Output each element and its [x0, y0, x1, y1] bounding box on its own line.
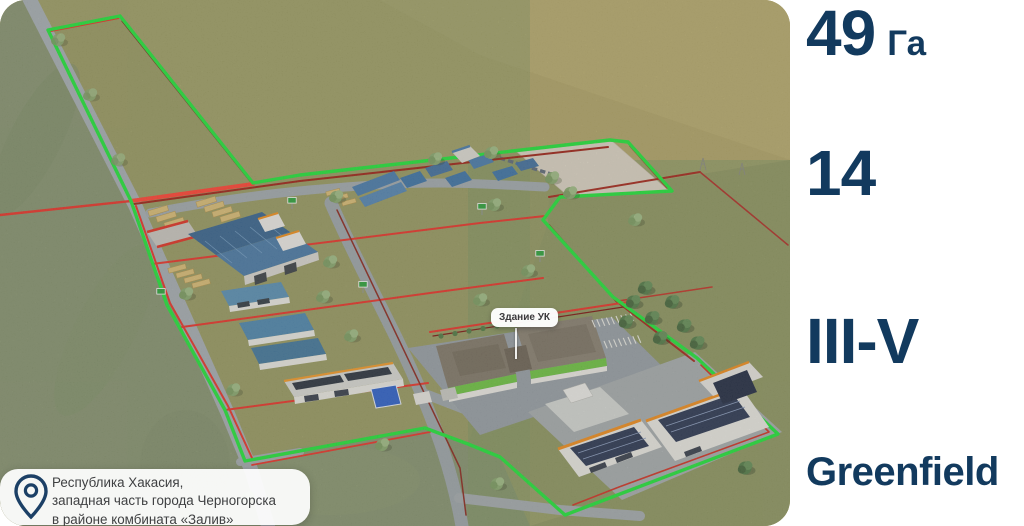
stat-area-value: 49 [806, 0, 875, 69]
uk-building-label: Здание УК [491, 308, 558, 327]
stat-site-type: Greenfield [806, 450, 999, 494]
location-text: Республика Хакасия, западная часть город… [52, 474, 276, 526]
uk-label-stem [515, 328, 517, 359]
stat-hazard-class-value: III-V [806, 305, 918, 377]
site-render: Здание УК Республика Хакасия, западная ч… [0, 0, 790, 526]
stats-column: 49Га 14 III-V Greenfield [806, 0, 1024, 526]
location-line-1: Республика Хакасия, [52, 474, 276, 492]
texture-grain-light [0, 0, 790, 526]
location-pin-icon [13, 473, 49, 521]
site-plan-figure: Здание УК Республика Хакасия, западная ч… [0, 0, 1024, 526]
location-line-2: западная часть города Черногорска [52, 492, 276, 510]
stat-area: 49Га [806, 0, 926, 66]
stat-plots-value: 14 [806, 137, 875, 209]
uk-building-label-text: Здание УК [499, 312, 550, 323]
site-render-graphic [0, 0, 790, 526]
stat-hazard-class: III-V [806, 308, 918, 374]
stat-site-type-value: Greenfield [806, 450, 999, 494]
location-card: Республика Хакасия, западная часть город… [0, 469, 310, 525]
stat-area-unit: Га [887, 24, 926, 63]
location-line-3: в районе комбината «Залив» [52, 511, 276, 526]
stat-plots: 14 [806, 140, 875, 206]
